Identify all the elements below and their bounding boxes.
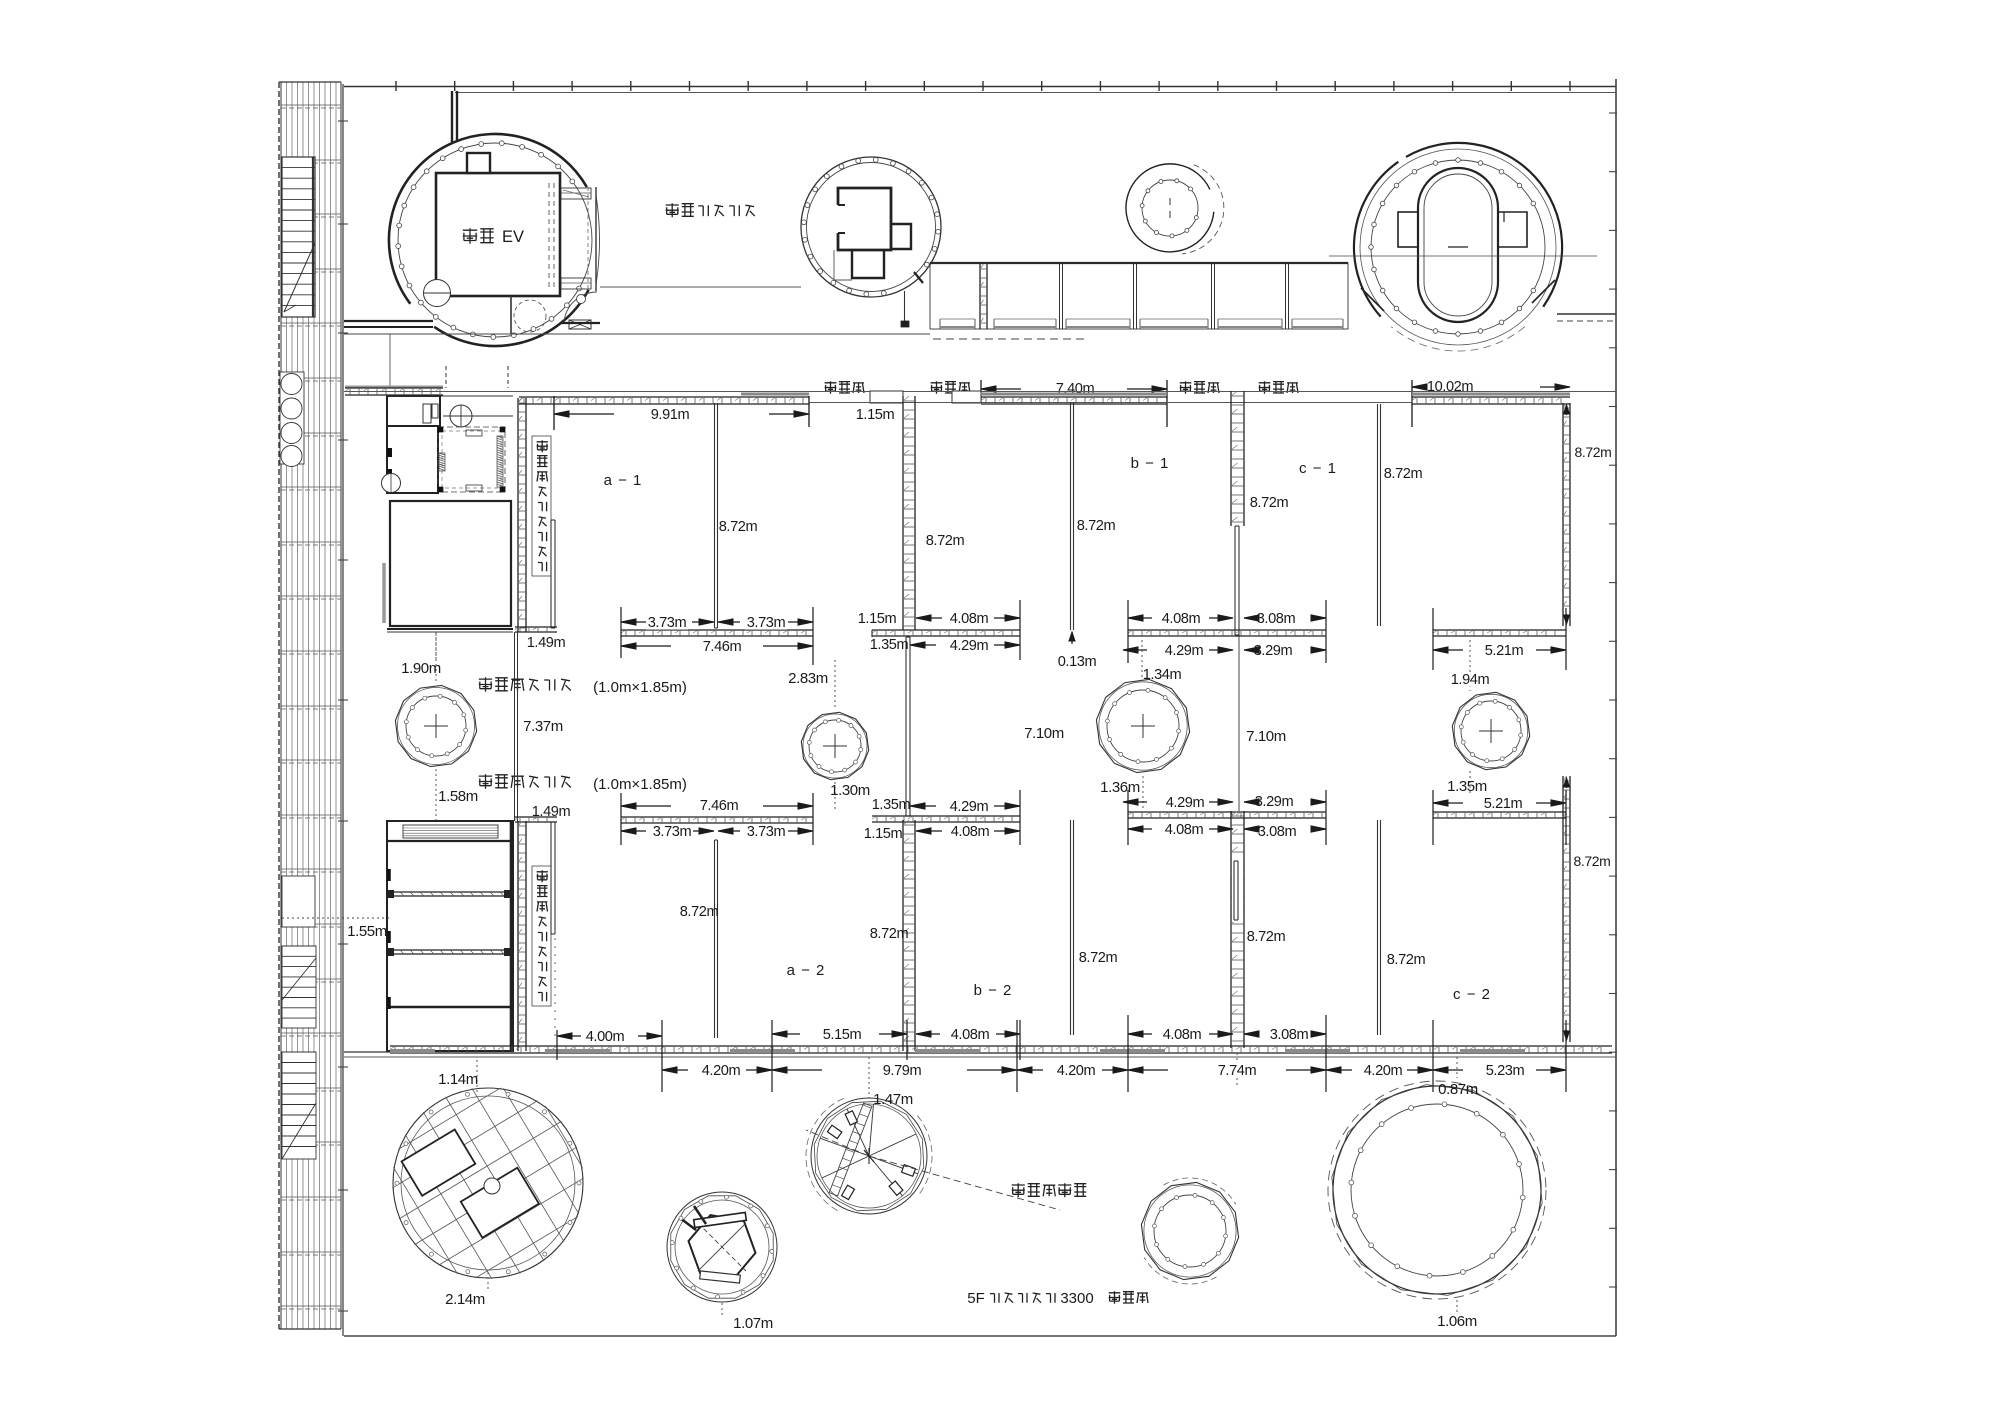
svg-text:1.90m: 1.90m <box>401 660 441 677</box>
svg-text:4.20m: 4.20m <box>1057 1063 1096 1079</box>
svg-text:3.73m: 3.73m <box>747 615 786 631</box>
svg-text:8.72m: 8.72m <box>1079 950 1118 966</box>
svg-text:8.72m: 8.72m <box>1387 952 1426 968</box>
svg-text:4.29m: 4.29m <box>950 799 989 815</box>
svg-text:(1.0m×1.85m): (1.0m×1.85m) <box>593 776 687 793</box>
svg-text:8.72m: 8.72m <box>870 926 909 942</box>
svg-text:7.46m: 7.46m <box>703 639 742 655</box>
svg-text:1.06m: 1.06m <box>1437 1313 1477 1330</box>
svg-text:9.91m: 9.91m <box>651 407 690 423</box>
svg-text:7.10m: 7.10m <box>1024 725 1064 742</box>
svg-text:4.29m: 4.29m <box>1166 795 1205 811</box>
svg-text:1.94m: 1.94m <box>1451 672 1490 688</box>
svg-text:4.29m: 4.29m <box>950 638 989 654</box>
svg-text:c − 2: c − 2 <box>1453 986 1491 1003</box>
svg-text:4.08m: 4.08m <box>1163 1027 1202 1043</box>
svg-text:a − 1: a − 1 <box>604 472 643 489</box>
svg-text:5.21m: 5.21m <box>1484 796 1523 812</box>
svg-text:8.72m: 8.72m <box>719 519 758 535</box>
svg-text:1.35m: 1.35m <box>1447 778 1487 795</box>
svg-text:4.00m: 4.00m <box>586 1029 625 1045</box>
svg-text:b − 1: b − 1 <box>1131 455 1170 472</box>
svg-text:1.15m: 1.15m <box>858 611 897 627</box>
svg-text:3.29m: 3.29m <box>1255 794 1294 810</box>
svg-text:0.13m: 0.13m <box>1058 654 1097 670</box>
svg-text:1.07m: 1.07m <box>733 1315 773 1332</box>
svg-text:4.08m: 4.08m <box>1162 611 1201 627</box>
svg-text:1.30m: 1.30m <box>830 782 870 799</box>
svg-text:3.73m: 3.73m <box>653 824 692 840</box>
svg-text:0.87m: 0.87m <box>1438 1081 1478 1098</box>
svg-text:4.20m: 4.20m <box>702 1063 741 1079</box>
svg-text:5.21m: 5.21m <box>1485 643 1524 659</box>
svg-text:4.20m: 4.20m <box>1364 1063 1403 1079</box>
svg-text:3300: 3300 <box>1060 1290 1093 1307</box>
svg-text:8.72m: 8.72m <box>1574 853 1611 869</box>
svg-text:2.14m: 2.14m <box>445 1291 485 1308</box>
svg-text:4.08m: 4.08m <box>951 824 990 840</box>
svg-text:7.37m: 7.37m <box>523 718 563 735</box>
svg-text:8.72m: 8.72m <box>1077 518 1116 534</box>
svg-text:(1.0m×1.85m): (1.0m×1.85m) <box>593 679 687 696</box>
svg-text:3.73m: 3.73m <box>747 824 786 840</box>
svg-text:8.72m: 8.72m <box>1247 929 1286 945</box>
svg-text:4.29m: 4.29m <box>1165 643 1204 659</box>
svg-text:3.29m: 3.29m <box>1254 643 1293 659</box>
svg-text:1.49m: 1.49m <box>527 635 566 651</box>
svg-text:1.36m: 1.36m <box>1100 779 1140 796</box>
svg-text:5F: 5F <box>967 1290 985 1307</box>
svg-text:8.72m: 8.72m <box>1250 495 1289 511</box>
svg-text:9.79m: 9.79m <box>883 1063 922 1079</box>
svg-text:1.34m: 1.34m <box>1143 667 1182 683</box>
svg-text:a − 2: a − 2 <box>787 962 826 979</box>
svg-text:1.55m: 1.55m <box>347 923 387 940</box>
svg-text:8.72m: 8.72m <box>1575 444 1612 460</box>
svg-text:1.14m: 1.14m <box>438 1071 478 1088</box>
svg-text:1.35m: 1.35m <box>870 637 909 653</box>
svg-text:4.08m: 4.08m <box>951 1027 990 1043</box>
svg-text:8.72m: 8.72m <box>926 533 965 549</box>
svg-text:5.23m: 5.23m <box>1486 1063 1525 1079</box>
svg-text:1.15m: 1.15m <box>864 826 903 842</box>
svg-text:1.15m: 1.15m <box>856 407 895 423</box>
svg-text:7.10m: 7.10m <box>1246 728 1286 745</box>
svg-text:2.83m: 2.83m <box>788 670 828 687</box>
svg-text:1.49m: 1.49m <box>532 804 571 820</box>
svg-text:4.08m: 4.08m <box>950 611 989 627</box>
svg-text:7.46m: 7.46m <box>700 798 739 814</box>
svg-text:EV: EV <box>502 228 524 246</box>
svg-text:7.74m: 7.74m <box>1218 1063 1257 1079</box>
svg-text:1.35m: 1.35m <box>872 797 911 813</box>
svg-text:1.58m: 1.58m <box>438 788 478 805</box>
svg-text:3.08m: 3.08m <box>1258 824 1297 840</box>
svg-text:3.08m: 3.08m <box>1270 1027 1309 1043</box>
svg-text:3.73m: 3.73m <box>648 615 687 631</box>
svg-text:4.08m: 4.08m <box>1165 822 1204 838</box>
svg-text:b − 2: b − 2 <box>974 982 1013 999</box>
svg-text:8.72m: 8.72m <box>1384 466 1423 482</box>
svg-text:c − 1: c − 1 <box>1299 460 1337 477</box>
svg-text:5.15m: 5.15m <box>823 1027 862 1043</box>
svg-text:8.72m: 8.72m <box>680 904 719 920</box>
svg-text:1.47m: 1.47m <box>873 1091 913 1108</box>
svg-text:3.08m: 3.08m <box>1257 611 1296 627</box>
